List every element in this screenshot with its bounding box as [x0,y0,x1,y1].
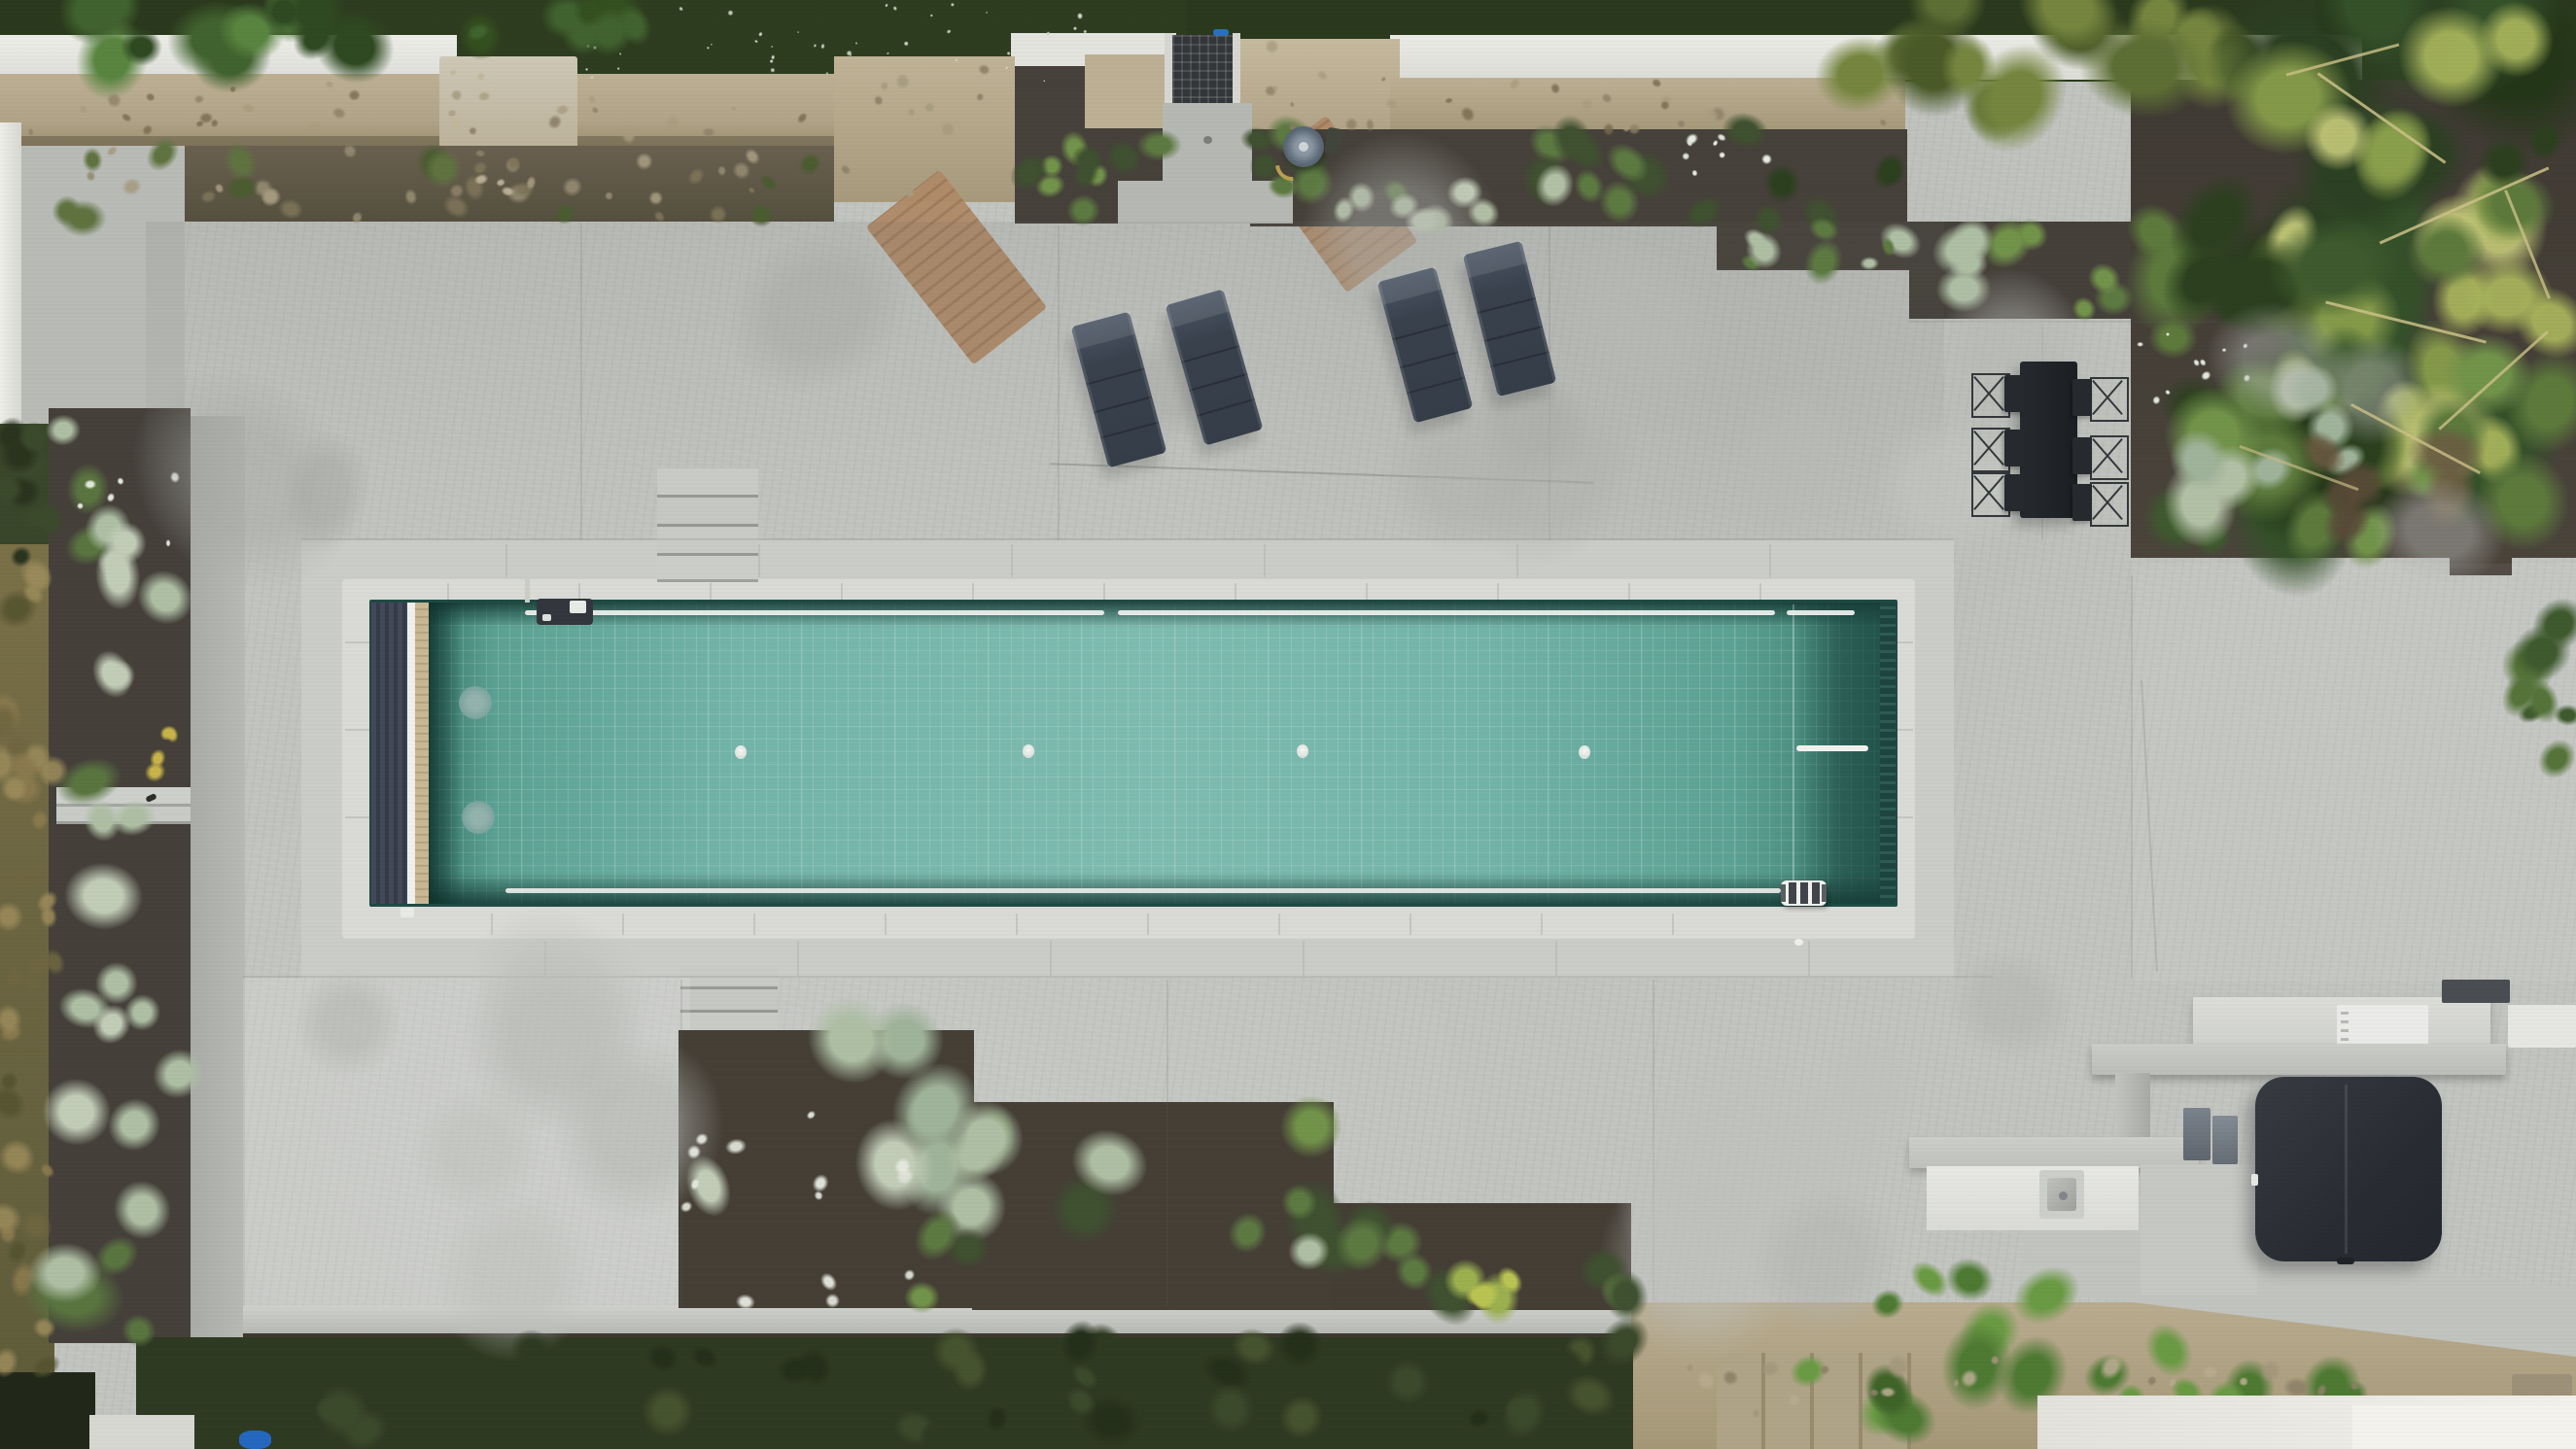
lounger-bar [1400,351,1458,368]
lounger-bar [1407,377,1465,395]
lounger-bar [1490,351,1549,367]
dining-chair-frame-5 [2090,435,2129,480]
dining-chair-seat-1 [2004,375,2024,412]
lounger-bar [1392,323,1450,340]
dining-table [2020,362,2077,518]
lounger-bar [1197,398,1255,417]
lounger-bar [1100,422,1159,439]
lounger-bar [1094,396,1152,413]
dining-chair-seat-3 [2004,474,2024,511]
viewport [0,0,2576,1449]
aerial-garden-photo [0,0,2576,1449]
lounger-bar [1189,373,1247,392]
dining-chair-seat-5 [2072,437,2092,474]
lounger-bar [1477,297,1536,314]
lounger-bar [1484,326,1544,342]
dining-chair-frame-4 [2090,377,2129,422]
lounger-bar [1086,367,1144,385]
dining-chair-seat-4 [2072,379,2092,416]
dining-chair-frame-6 [2090,482,2129,527]
dining-chair-seat-6 [2072,484,2092,521]
dining-chair-seat-2 [2004,430,2024,466]
photo-vignette [0,0,2576,1449]
lounger-bar [1181,345,1239,363]
